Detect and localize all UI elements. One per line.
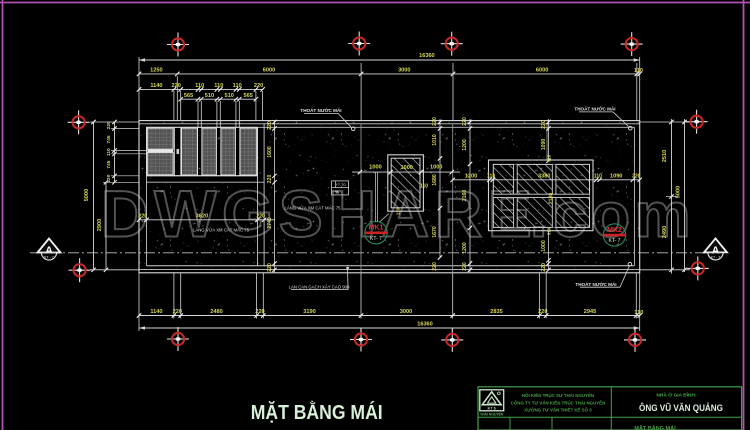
svg-text:2180: 2180: [549, 193, 555, 205]
svg-text:MK1: MK1: [369, 225, 384, 232]
svg-text:1140: 1140: [150, 309, 162, 315]
svg-text:110: 110: [233, 83, 242, 89]
svg-text:3000: 3000: [398, 68, 410, 74]
svg-text:110: 110: [396, 207, 401, 215]
svg-text:LÁNG VỮA XM CÁT MÁC 75: LÁNG VỮA XM CÁT MÁC 75: [193, 227, 250, 232]
svg-text:1200: 1200: [462, 242, 468, 254]
svg-text:110: 110: [214, 83, 223, 89]
svg-text:A: A: [712, 244, 720, 256]
svg-text:110: 110: [634, 310, 643, 316]
svg-text:220: 220: [462, 117, 468, 126]
svg-text:K T S: K T S: [488, 406, 496, 410]
svg-text:HỘI KIẾN TRÚC SƯ THÁI NGUYÊN: HỘI KIẾN TRÚC SƯ THÁI NGUYÊN: [522, 393, 594, 398]
svg-text:ÔNG VŨ VĂN QUẢNG: ÔNG VŨ VĂN QUẢNG: [639, 402, 723, 413]
svg-text:2740: 2740: [267, 217, 273, 229]
svg-text:1090: 1090: [541, 139, 547, 151]
svg-text:2945: 2945: [584, 309, 596, 315]
svg-text:1000: 1000: [541, 240, 547, 252]
svg-text:1200: 1200: [462, 139, 468, 151]
svg-text:THOÁT NƯỚC MÁI: THOÁT NƯỚC MÁI: [300, 106, 341, 113]
svg-text:6000: 6000: [263, 68, 275, 74]
svg-text:510: 510: [225, 93, 234, 99]
svg-text:110: 110: [195, 83, 204, 89]
svg-text:310: 310: [547, 154, 552, 162]
svg-text:THOÁT NƯỚC MÁI: THOÁT NƯỚC MÁI: [574, 105, 615, 112]
svg-text:%: %: [335, 190, 339, 195]
svg-text:2900: 2900: [97, 219, 103, 231]
svg-text:110: 110: [487, 173, 495, 179]
svg-text:110: 110: [634, 68, 643, 74]
svg-text:220: 220: [254, 83, 263, 89]
svg-text:LÁNG VỮA XM CÁT MÁC 75: LÁNG VỮA XM CÁT MÁC 75: [284, 205, 341, 210]
svg-text:220: 220: [267, 121, 273, 130]
svg-text:2160: 2160: [462, 190, 468, 202]
svg-text:2490: 2490: [662, 226, 668, 238]
svg-text:220: 220: [138, 213, 147, 219]
svg-text:+7.70: +7.70: [335, 182, 346, 187]
svg-text:110: 110: [594, 173, 602, 179]
svg-text:110: 110: [106, 148, 112, 156]
svg-text:220: 220: [462, 262, 468, 271]
svg-text:A: A: [45, 245, 53, 257]
svg-text:1670: 1670: [432, 226, 438, 238]
svg-text:565: 565: [184, 93, 193, 99]
svg-text:110: 110: [420, 184, 428, 190]
svg-text:5000: 5000: [84, 189, 90, 201]
svg-text:6000: 6000: [536, 68, 548, 74]
svg-text:KT - 7: KT - 7: [44, 256, 54, 260]
svg-text:745: 745: [106, 160, 112, 168]
svg-text:3620: 3620: [196, 213, 208, 219]
svg-text:1680: 1680: [432, 174, 438, 186]
svg-text:THÁI NGUYÊN: THÁI NGUYÊN: [480, 411, 504, 416]
svg-text:2480: 2480: [210, 309, 222, 315]
svg-text:CÔNG TY TƯ VẤN KIẾN TRÚC THÁI: CÔNG TY TƯ VẤN KIẾN TRÚC THÁI NGUYÊN: [511, 400, 606, 405]
svg-text:16360: 16360: [417, 322, 433, 328]
svg-text:XƯỞNG TƯ VẤN THIẾT KẾ SỐ 3: XƯỞNG TƯ VẤN THIẾT KẾ SỐ 3: [524, 407, 592, 412]
svg-text:MẶT BẰNG MÁI: MẶT BẰNG MÁI: [251, 400, 383, 424]
svg-text:1010: 1010: [432, 134, 438, 146]
svg-text:220: 220: [632, 173, 641, 179]
svg-text:510: 510: [205, 93, 214, 99]
svg-text:1200: 1200: [465, 173, 477, 179]
svg-text:KT - 7: KT - 7: [711, 256, 721, 260]
svg-text:KT- 7: KT- 7: [609, 238, 621, 244]
svg-text:KT- 7: KT- 7: [370, 236, 382, 242]
svg-text:3380: 3380: [538, 173, 550, 179]
svg-text:THOÁT NƯỚC MÁI: THOÁT NƯỚC MÁI: [575, 280, 616, 287]
svg-text:2835: 2835: [490, 309, 502, 315]
svg-text:565: 565: [244, 93, 253, 99]
svg-text:3190: 3190: [303, 309, 315, 315]
svg-text:1000: 1000: [400, 165, 412, 171]
svg-text:MK2: MK2: [607, 227, 622, 234]
svg-text:1090: 1090: [610, 173, 622, 179]
svg-text:220: 220: [267, 263, 273, 272]
svg-text:2510: 2510: [662, 150, 668, 162]
svg-text:220: 220: [172, 83, 181, 89]
svg-text:3000: 3000: [400, 309, 412, 315]
svg-text:1250: 1250: [150, 68, 162, 74]
svg-text:1000: 1000: [430, 165, 442, 171]
svg-text:745: 745: [106, 135, 112, 143]
svg-text:LAN CAN GẠCH XÂY CAO 900: LAN CAN GẠCH XÂY CAO 900: [289, 284, 350, 289]
svg-text:310: 310: [547, 227, 552, 235]
svg-text:220: 220: [541, 263, 547, 272]
svg-text:1140: 1140: [150, 83, 162, 89]
svg-text:220: 220: [432, 262, 438, 271]
svg-text:220: 220: [432, 117, 438, 126]
svg-text:1000: 1000: [369, 165, 381, 171]
svg-text:1600: 1600: [267, 146, 273, 158]
svg-text:220: 220: [267, 175, 273, 184]
svg-text:16360: 16360: [419, 53, 435, 59]
svg-text:220: 220: [256, 213, 265, 219]
svg-text:220: 220: [541, 120, 547, 129]
